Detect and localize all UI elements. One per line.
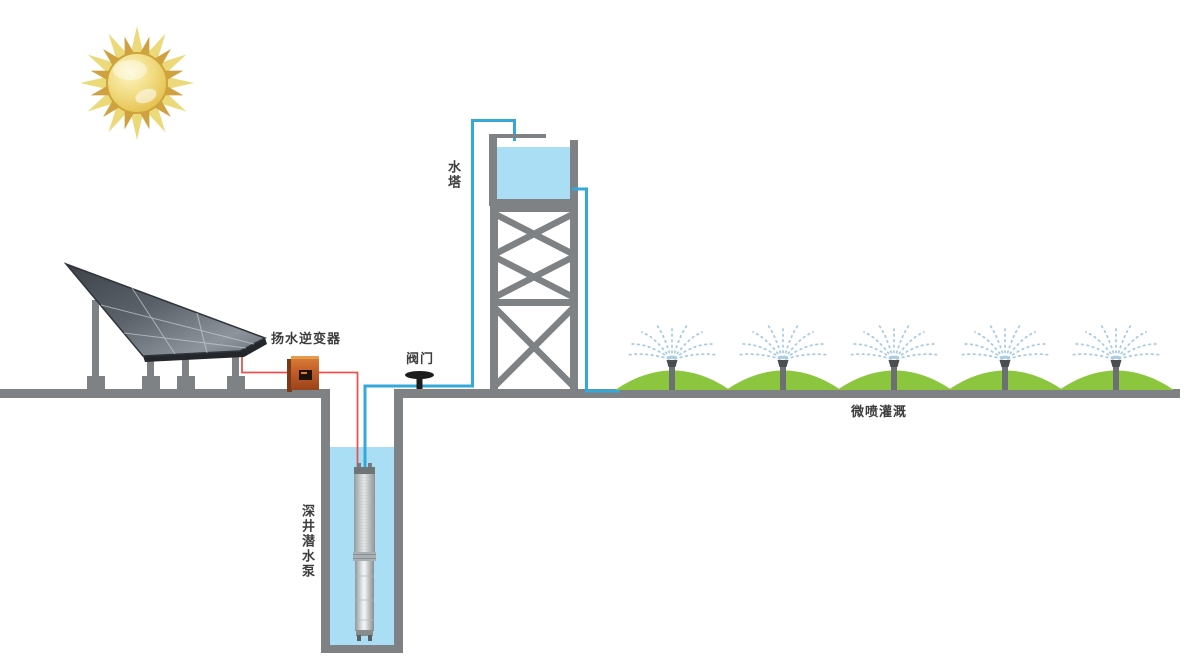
label-valve: 阀门 (404, 353, 436, 368)
label-water-tower: 水塔 (444, 160, 459, 190)
schematic-drawing (0, 0, 1198, 660)
label-inverter: 扬水逆变器 (264, 333, 348, 348)
tank-water (497, 147, 570, 199)
solar-panel-array (66, 264, 267, 389)
label-submersible-pump: 深井潜水泵 (298, 504, 313, 579)
submersible-pump (353, 463, 376, 641)
label-irrigation: 微喷灌溉 (843, 406, 915, 421)
water-pipe-outlet (572, 189, 620, 391)
water-tower (489, 134, 578, 390)
sun-icon (80, 26, 194, 140)
diagram-canvas: 扬水逆变器 阀门 水塔 深井潜水泵 微喷灌溉 (0, 0, 1198, 660)
inverter-display (299, 370, 312, 380)
inverter-box (287, 356, 319, 392)
